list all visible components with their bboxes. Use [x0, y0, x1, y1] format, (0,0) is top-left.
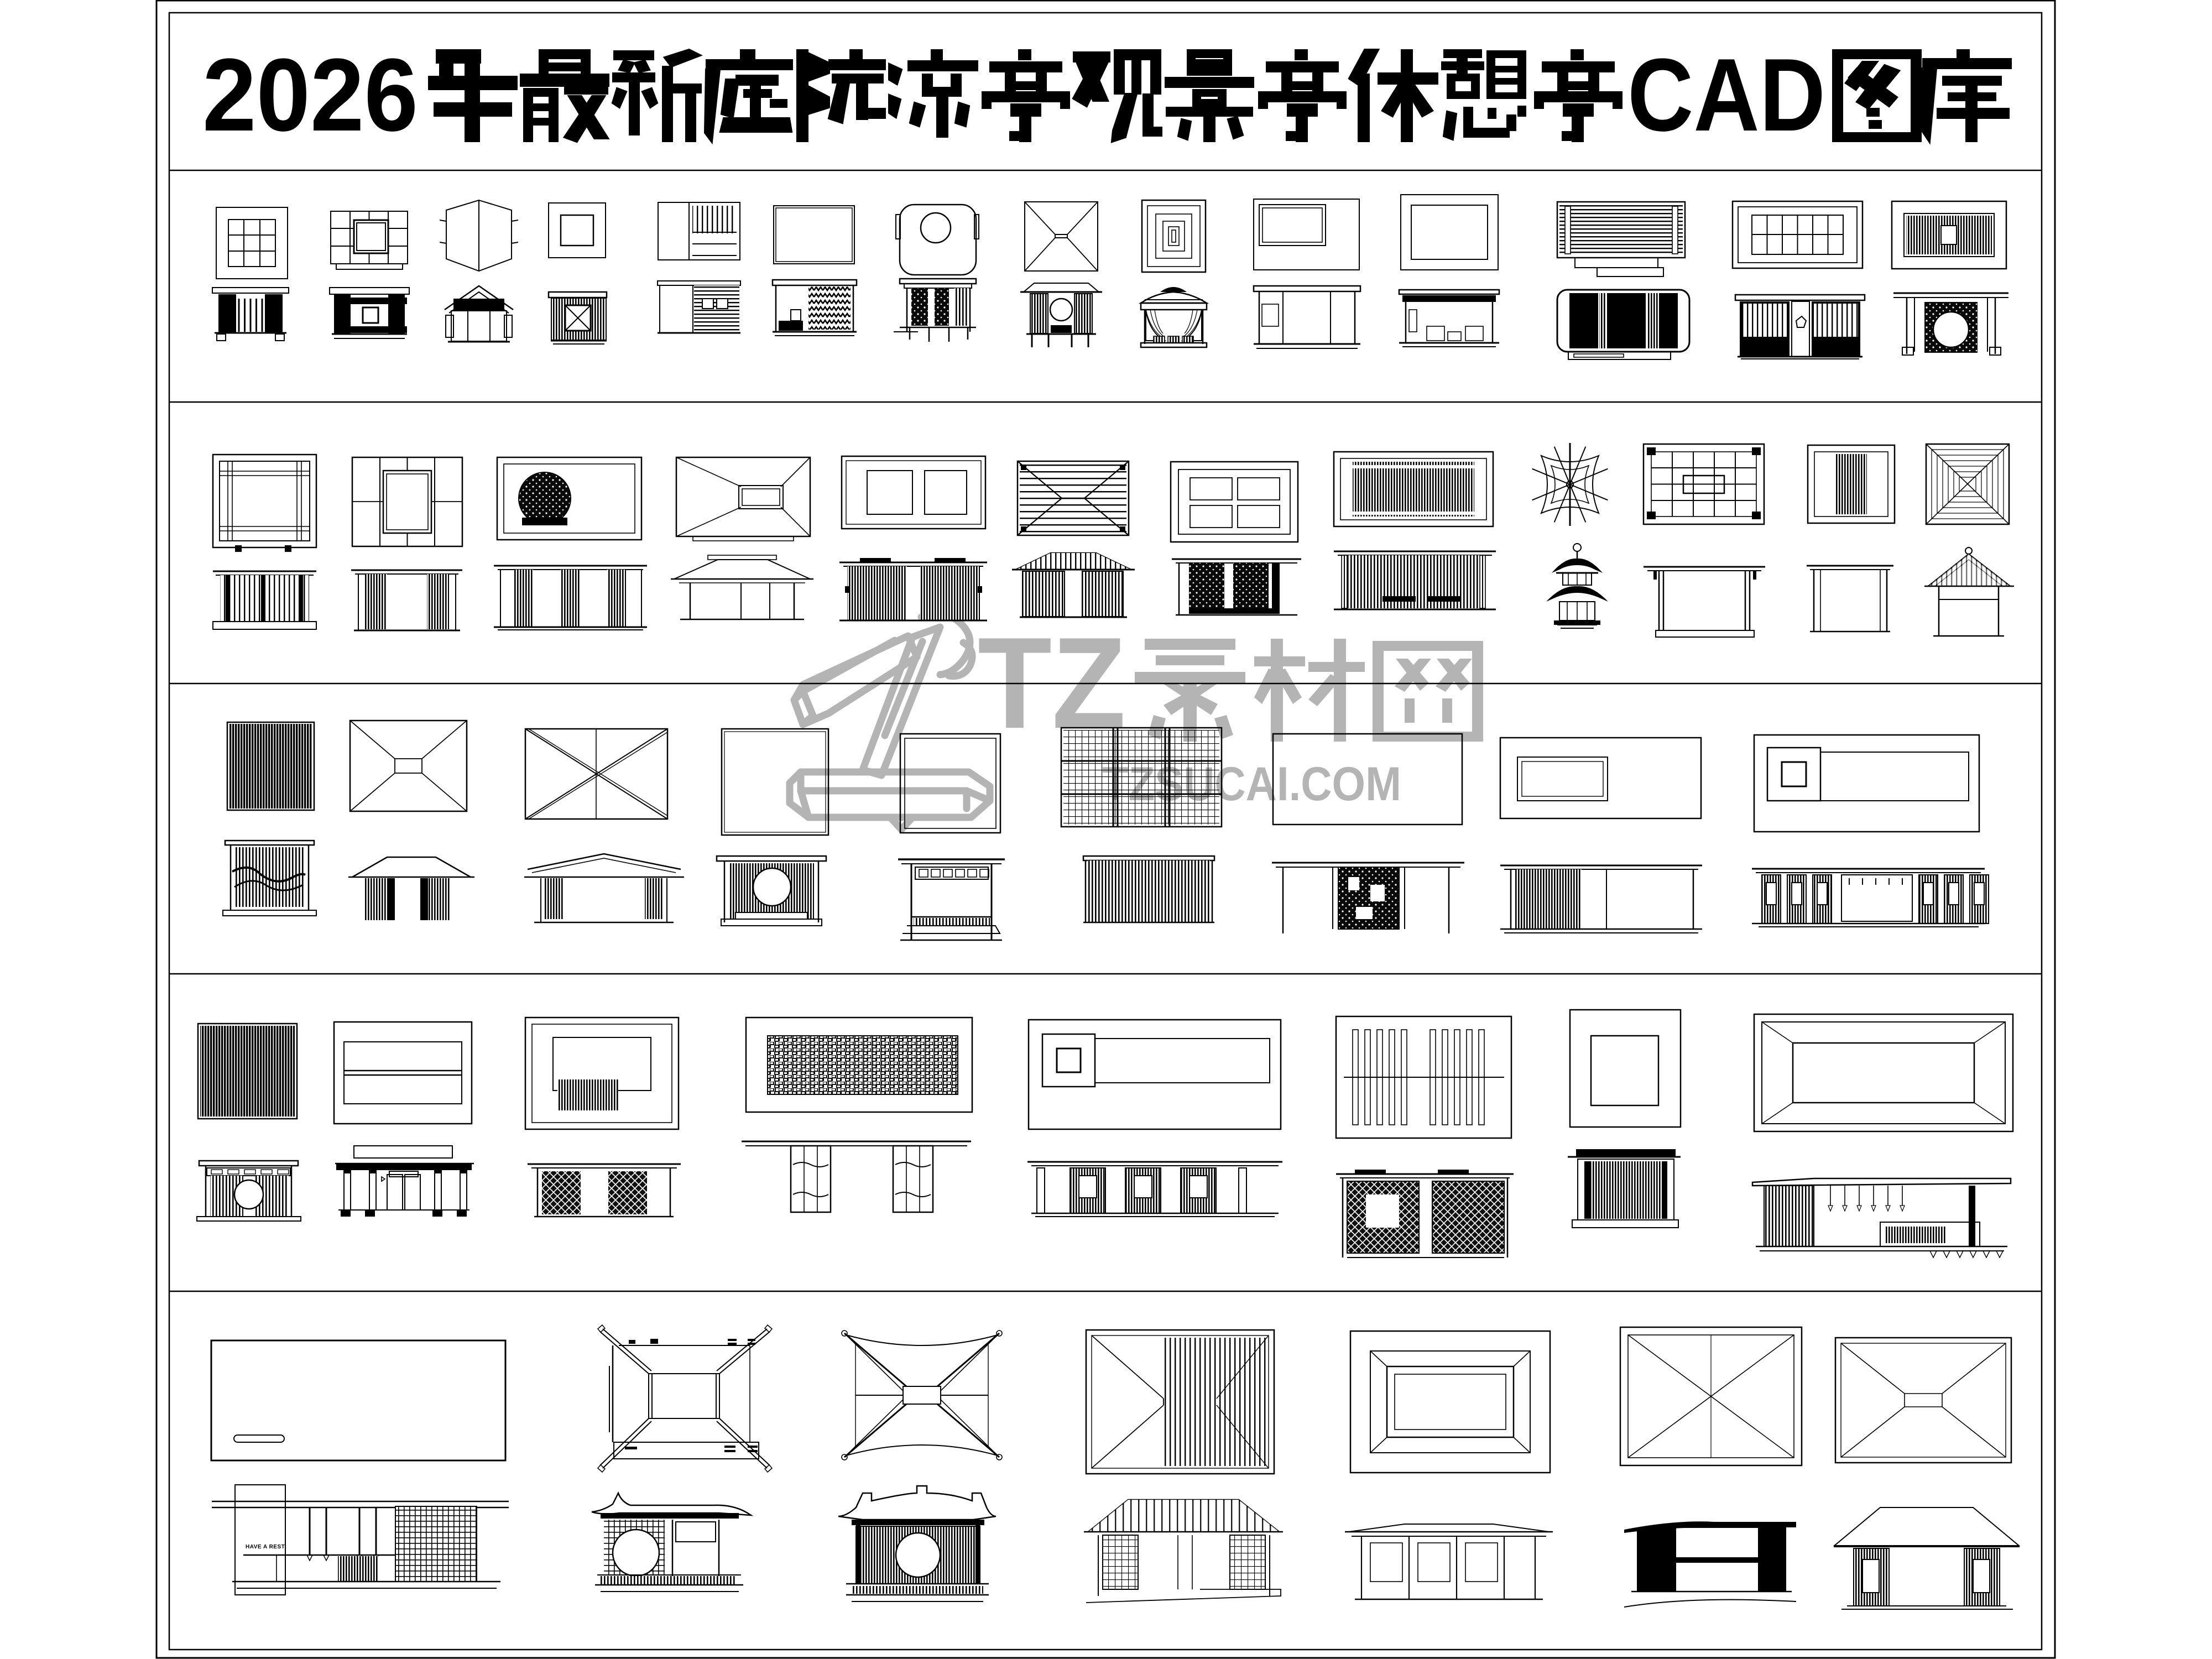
svg-text:CAD: CAD — [1627, 37, 1825, 153]
svg-text:2026: 2026 — [202, 37, 418, 153]
svg-text:HAVE A REST: HAVE A REST — [246, 1544, 285, 1550]
